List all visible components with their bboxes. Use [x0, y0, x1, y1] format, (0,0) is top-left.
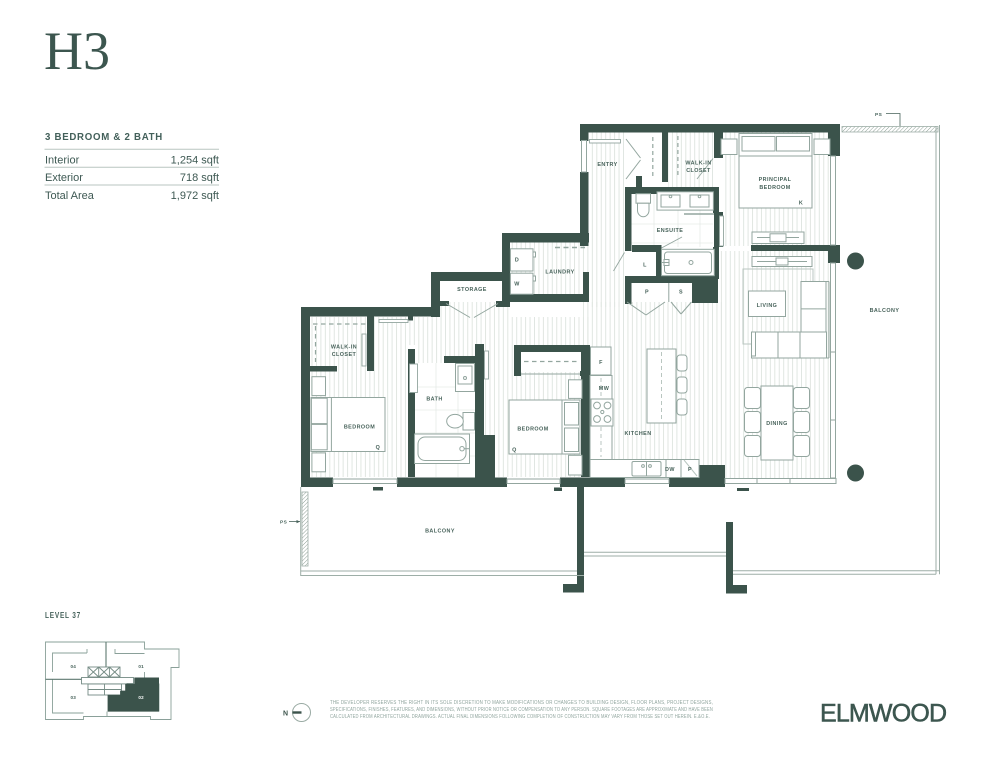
svg-text:Q: Q	[512, 448, 517, 454]
svg-text:P: P	[645, 290, 649, 296]
svg-text:02: 02	[138, 695, 144, 700]
svg-text:D: D	[515, 258, 519, 264]
svg-text:L: L	[643, 263, 647, 269]
svg-text:S: S	[679, 290, 683, 296]
svg-text:Exterior: Exterior	[45, 172, 83, 184]
svg-text:WALK-IN: WALK-IN	[685, 161, 711, 167]
svg-text:CLOSET: CLOSET	[332, 352, 357, 358]
svg-text:ENSUITE: ENSUITE	[657, 228, 684, 234]
svg-text:BATH: BATH	[426, 397, 442, 403]
svg-text:THE DEVELOPER RESERVES THE RIG: THE DEVELOPER RESERVES THE RIGHT IN ITS …	[330, 700, 713, 706]
svg-text:H3: H3	[44, 21, 110, 81]
svg-text:3 BEDROOM & 2 BATH: 3 BEDROOM & 2 BATH	[45, 131, 163, 143]
svg-text:BEDROOM: BEDROOM	[517, 427, 548, 433]
svg-text:PS: PS	[280, 520, 288, 526]
svg-text:CALCULATED FROM ARCHITECTURAL: CALCULATED FROM ARCHITECTURAL DRAWINGS. …	[330, 714, 710, 720]
svg-text:BEDROOM: BEDROOM	[344, 425, 375, 431]
svg-text:WALK-IN: WALK-IN	[331, 345, 357, 351]
svg-text:BALCONY: BALCONY	[870, 308, 900, 314]
svg-text:KITCHEN: KITCHEN	[624, 431, 651, 437]
svg-text:N: N	[283, 711, 288, 718]
svg-text:STORAGE: STORAGE	[457, 287, 487, 293]
svg-text:03: 03	[70, 695, 76, 700]
svg-text:SPECIFICATIONS, FINISHES, FEAT: SPECIFICATIONS, FINISHES, FEATURES, AND …	[330, 707, 713, 713]
svg-text:CLOSET: CLOSET	[686, 168, 711, 174]
svg-text:ELMWOOD: ELMWOOD	[820, 700, 947, 728]
svg-text:P: P	[688, 467, 692, 473]
svg-text:Total Area: Total Area	[45, 190, 95, 202]
svg-text:01: 01	[138, 664, 144, 669]
svg-text:PS: PS	[875, 112, 883, 118]
svg-text:DINING: DINING	[766, 421, 788, 427]
svg-text:718 sqft: 718 sqft	[180, 172, 219, 184]
svg-text:F: F	[599, 360, 603, 366]
svg-text:1,972 sqft: 1,972 sqft	[171, 190, 219, 202]
svg-text:LIVING: LIVING	[757, 303, 778, 309]
svg-text:LAUNDRY: LAUNDRY	[545, 270, 574, 276]
svg-text:DW: DW	[665, 467, 675, 473]
svg-text:1,254 sqft: 1,254 sqft	[171, 155, 219, 167]
svg-text:Q: Q	[376, 445, 381, 451]
svg-text:W: W	[514, 282, 520, 288]
svg-text:BALCONY: BALCONY	[425, 529, 455, 535]
svg-text:04: 04	[70, 664, 76, 669]
svg-text:K: K	[799, 201, 803, 207]
svg-text:ENTRY: ENTRY	[597, 162, 617, 168]
svg-text:BEDROOM: BEDROOM	[759, 185, 790, 191]
svg-text:Interior: Interior	[45, 155, 80, 167]
svg-text:MW: MW	[599, 386, 610, 392]
svg-text:PRINCIPAL: PRINCIPAL	[759, 177, 792, 183]
svg-text:LEVEL 37: LEVEL 37	[45, 611, 81, 620]
